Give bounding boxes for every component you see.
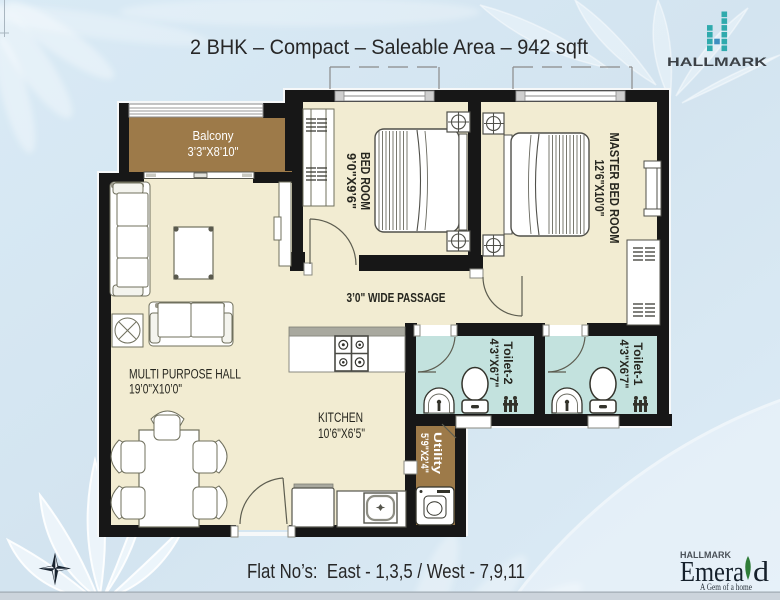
svg-text:Toilet-1: Toilet-1 — [631, 343, 645, 386]
svg-text:d: d — [753, 557, 769, 588]
svg-text:4’3"X6’7": 4’3"X6’7" — [487, 339, 501, 388]
svg-text:MASTER BED ROOM: MASTER BED ROOM — [607, 133, 622, 244]
svg-text:BED ROOM: BED ROOM — [358, 152, 372, 210]
svg-text:10’6"X6’5": 10’6"X6’5" — [318, 426, 365, 441]
svg-text:Utility: Utility — [431, 432, 443, 475]
svg-text:MULTI PURPOSE HALL: MULTI PURPOSE HALL — [129, 367, 241, 382]
svg-text:3’3"X8’10": 3’3"X8’10" — [188, 145, 239, 159]
svg-text:HALLMARK: HALLMARK — [667, 55, 767, 69]
svg-text:Flat No’s: East - 1,3,5 / Wes: Flat No’s: East - 1,3,5 / West - 7,9,11 — [247, 560, 525, 583]
svg-text:Toilet-2: Toilet-2 — [501, 342, 515, 385]
svg-text:5’9"X2’4": 5’9"X2’4" — [418, 433, 430, 473]
svg-text:2 BHK – Compact – Saleable Are: 2 BHK – Compact – Saleable Area – 942 sq… — [190, 36, 588, 59]
svg-text:12’6"X10’0": 12’6"X10’0" — [592, 160, 607, 217]
svg-text:9’0"X9’6": 9’0"X9’6" — [344, 153, 358, 209]
svg-text:3’0" WIDE PASSAGE: 3’0" WIDE PASSAGE — [347, 291, 446, 305]
svg-text:A Gem of a home: A Gem of a home — [700, 582, 752, 593]
svg-text:Balcony: Balcony — [193, 129, 235, 143]
svg-text:19’0"X10’0": 19’0"X10’0" — [129, 382, 182, 397]
svg-text:4’3"X6’7": 4’3"X6’7" — [617, 340, 631, 389]
svg-text:KITCHEN: KITCHEN — [318, 410, 363, 425]
